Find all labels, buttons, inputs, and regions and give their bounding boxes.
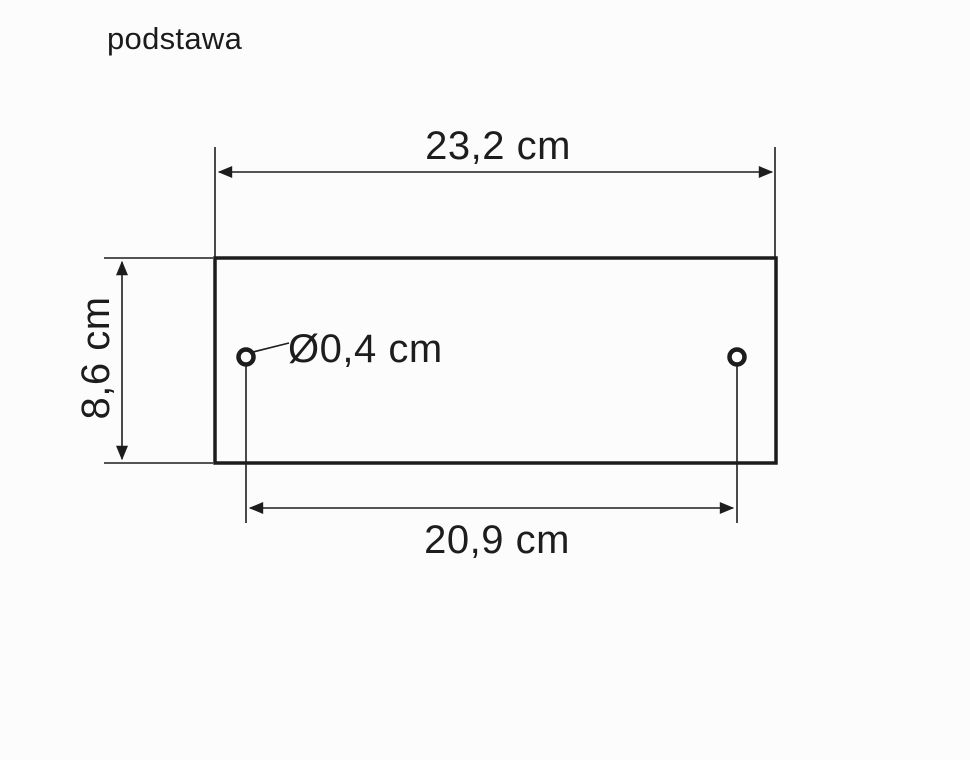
hole-spacing-dimension-label: 20,9 cm bbox=[424, 520, 570, 560]
hole-diameter-label: Ø0,4 cm bbox=[288, 329, 443, 369]
base-plate-drawing bbox=[0, 0, 970, 760]
left-hole bbox=[239, 350, 254, 365]
height-dimension-label: 8,6 cm bbox=[76, 296, 116, 419]
right-hole bbox=[730, 350, 745, 365]
width-dimension-label: 23,2 cm bbox=[425, 126, 571, 166]
hole-diameter-leader-line bbox=[253, 343, 289, 352]
drawing-canvas: podstawa 23,2 cm 8,6 cm Ø0,4 cm bbox=[0, 0, 970, 760]
